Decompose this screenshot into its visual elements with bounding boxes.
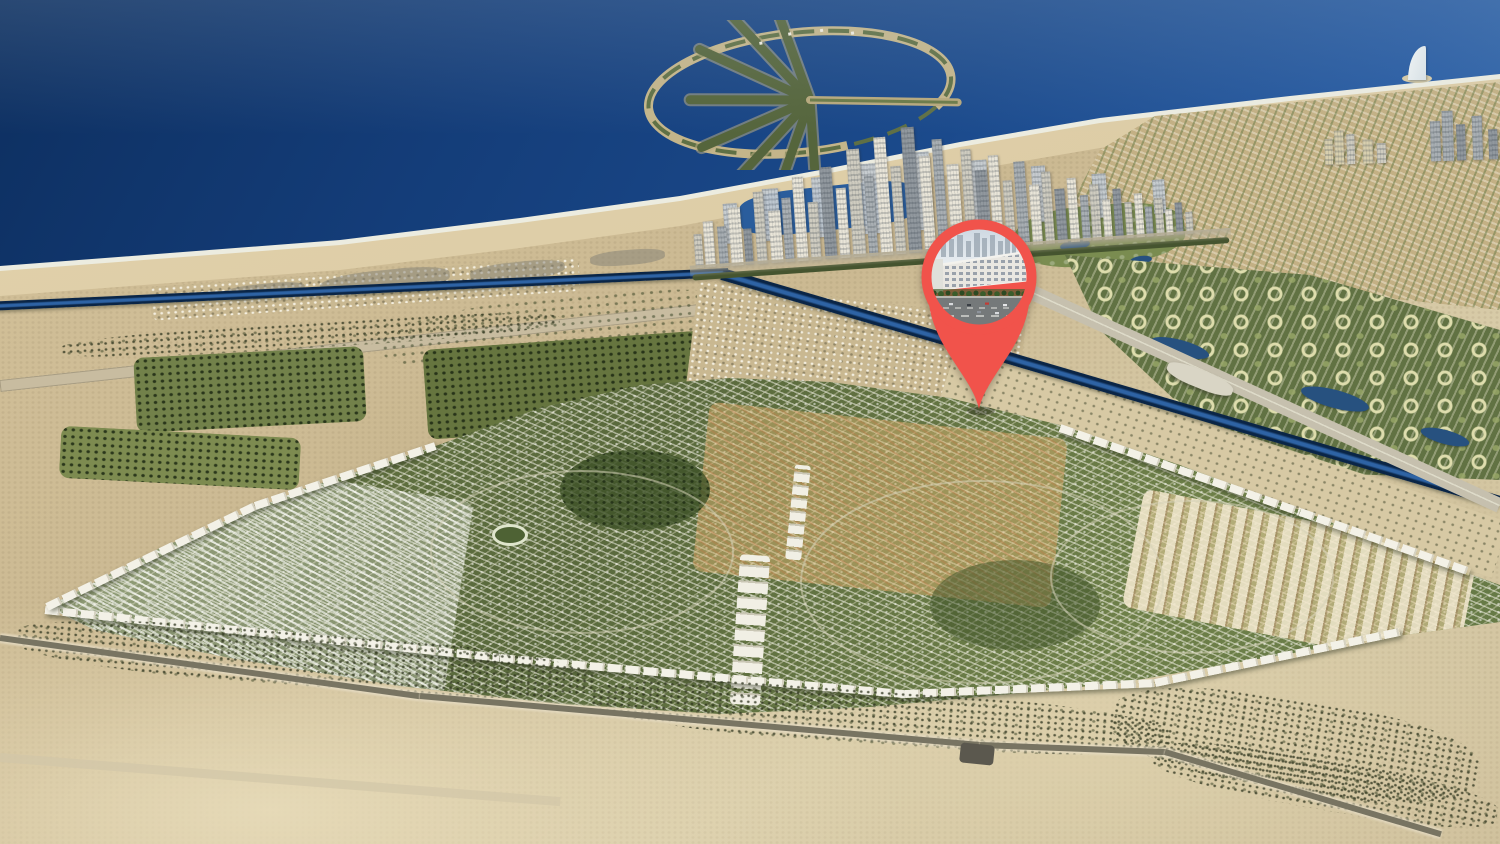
coastal-towers — [1317, 89, 1500, 166]
road-junction — [959, 742, 995, 765]
location-pin-marker[interactable] — [917, 215, 1041, 415]
palm-orchard — [133, 346, 367, 433]
stadium — [492, 524, 528, 546]
loop-road — [1050, 500, 1334, 654]
loop-road — [430, 470, 734, 634]
pin-shadow — [967, 407, 995, 415]
aerial-map — [0, 0, 1500, 844]
